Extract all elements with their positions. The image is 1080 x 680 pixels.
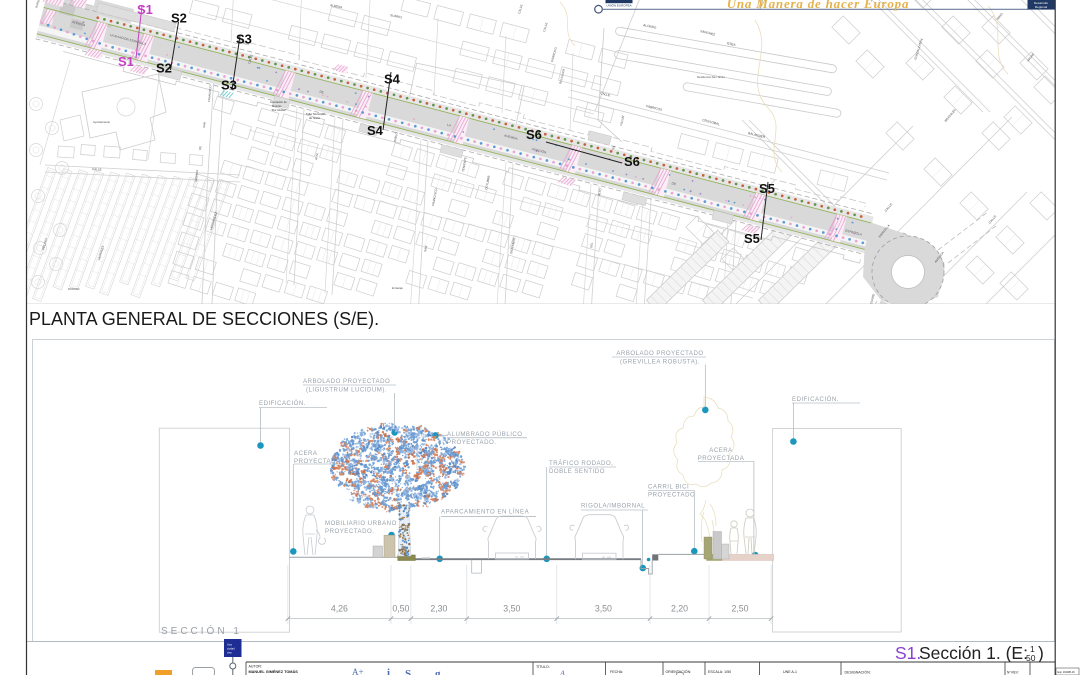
svg-text:FECHA:: FECHA:	[610, 670, 623, 674]
svg-text:PROYECTADO.: PROYECTADO.	[447, 439, 496, 446]
svg-text:ACERA: ACERA	[294, 450, 318, 457]
svg-text:4,26: 4,26	[331, 604, 348, 614]
svg-text:S3: S3	[236, 32, 252, 47]
svg-text:PROYECTADO.: PROYECTADO.	[325, 528, 374, 535]
svg-text:S2: S2	[156, 61, 172, 76]
svg-text:EDIFICACIÓN.: EDIFICACIÓN.	[259, 400, 306, 407]
svg-text:Nº REV:: Nº REV:	[1007, 671, 1019, 675]
svg-text:0,50: 0,50	[392, 604, 409, 614]
svg-text:S1: S1	[137, 2, 153, 17]
svg-text:Una: Una	[227, 643, 232, 647]
svg-text:AUTOR:: AUTOR:	[249, 665, 263, 669]
svg-text:ACERA: ACERA	[709, 447, 733, 454]
svg-text:Ayuntamiento: Ayuntamiento	[93, 120, 110, 124]
svg-text:S1: S1	[118, 54, 134, 69]
svg-text:Mujeres: Mujeres	[272, 104, 282, 108]
svg-text:3,50: 3,50	[503, 604, 520, 614]
svg-text:UNIÓN EUROPEA: UNIÓN EUROPEA	[606, 3, 631, 8]
svg-text:Asociación de: Asociación de	[270, 100, 287, 104]
svg-text:S6: S6	[624, 154, 640, 169]
svg-text:EDIFICACIÓN.: EDIFICACIÓN.	[792, 396, 839, 403]
svg-text:Taller Municipal: Taller Municipal	[306, 112, 325, 116]
svg-text:DE: DE	[198, 146, 202, 150]
svg-text:i: i	[387, 667, 390, 675]
svg-text:TRÁFICO RODADO,: TRÁFICO RODADO,	[549, 460, 613, 467]
svg-text:2,50: 2,50	[731, 604, 748, 614]
svg-text:El Garaje: El Garaje	[392, 286, 403, 290]
svg-text:CARRIL BICI: CARRIL BICI	[648, 484, 689, 491]
svg-text:SAN: SAN	[202, 122, 206, 128]
svg-text:ARBOLADO PROYECTADO: ARBOLADO PROYECTADO	[616, 350, 703, 357]
svg-text:S1.: S1.	[895, 643, 921, 663]
svg-text:viva: viva	[227, 651, 232, 655]
svg-text:SECCIÓN 1: SECCIÓN 1	[161, 624, 242, 637]
svg-text:de Teatro: de Teatro	[309, 116, 321, 120]
svg-text:Residencia San Javier: Residencia San Javier	[697, 75, 725, 79]
svg-text:S5: S5	[744, 231, 760, 246]
svg-text:2,20: 2,20	[671, 604, 688, 614]
svg-text:DOBLE SENTIDO: DOBLE SENTIDO	[549, 468, 605, 475]
svg-text:S2: S2	[171, 11, 187, 26]
svg-text:3,50: 3,50	[595, 604, 612, 614]
svg-text:MOBILIARIO URBANO: MOBILIARIO URBANO	[325, 520, 397, 527]
svg-text:DONOSO: DONOSO	[68, 287, 80, 291]
svg-text:PROYECTADA: PROYECTADA	[698, 455, 745, 462]
svg-text:ALUMBRADO PÚBLICO: ALUMBRADO PÚBLICO	[447, 431, 523, 438]
svg-text:S: S	[405, 668, 411, 675]
svg-text:S6: S6	[526, 127, 542, 142]
svg-text:g: g	[435, 668, 441, 675]
svg-text:(GREVILLEA ROBUSTA).: (GREVILLEA ROBUSTA).	[620, 359, 700, 366]
svg-text:APARCAMIENTO EN LÍNEA: APARCAMIENTO EN LÍNEA	[441, 509, 530, 516]
svg-text:S3: S3	[221, 78, 237, 93]
svg-text:ciudad: ciudad	[227, 647, 235, 651]
svg-text:S4: S4	[367, 123, 384, 138]
svg-text:Una Manera de hacer Europa: Una Manera de hacer Europa	[727, 0, 910, 11]
svg-text:TÍTULO:: TÍTULO:	[536, 665, 550, 669]
svg-text:S4: S4	[384, 72, 401, 87]
svg-text:CALLE: CALLE	[92, 167, 102, 171]
svg-text:UNE A-1: UNE A-1	[783, 670, 797, 674]
svg-text:A: A	[559, 669, 565, 675]
svg-text:PROYECTADO: PROYECTADO	[648, 492, 695, 499]
svg-text:Regional: Regional	[1035, 5, 1048, 9]
svg-text:MANUEL GIMÉNEZ TOMÁS: MANUEL GIMÉNEZ TOMÁS	[249, 669, 299, 674]
svg-text:“Flor Azahar”: “Flor Azahar”	[271, 108, 287, 112]
svg-text:(LIGUSTRUM LUCIDUM).: (LIGUSTRUM LUCIDUM).	[306, 387, 387, 394]
svg-text:Exp 1919/B-16: Exp 1919/B-16	[1058, 670, 1076, 674]
svg-text:ESCALA: 1/50: ESCALA: 1/50	[708, 670, 731, 674]
svg-text:ORIENTACIÓN:: ORIENTACIÓN:	[666, 669, 692, 674]
svg-text:PLANTA GENERAL DE SECCIONES (S: PLANTA GENERAL DE SECCIONES (S/E).	[29, 309, 379, 329]
svg-text:): )	[1038, 643, 1044, 663]
svg-text:S5: S5	[759, 181, 775, 196]
svg-text:A+: A+	[352, 667, 364, 675]
svg-text:Sección 1. (E:: Sección 1. (E:	[919, 643, 1028, 663]
svg-text:DESIGNACIÓN:: DESIGNACIÓN:	[845, 670, 871, 675]
svg-text:2,30: 2,30	[430, 604, 447, 614]
svg-text:ARBOLADO PROYECTADO: ARBOLADO PROYECTADO	[303, 378, 390, 385]
svg-text:RIGOLA/IMBORNAL: RIGOLA/IMBORNAL	[581, 503, 645, 510]
